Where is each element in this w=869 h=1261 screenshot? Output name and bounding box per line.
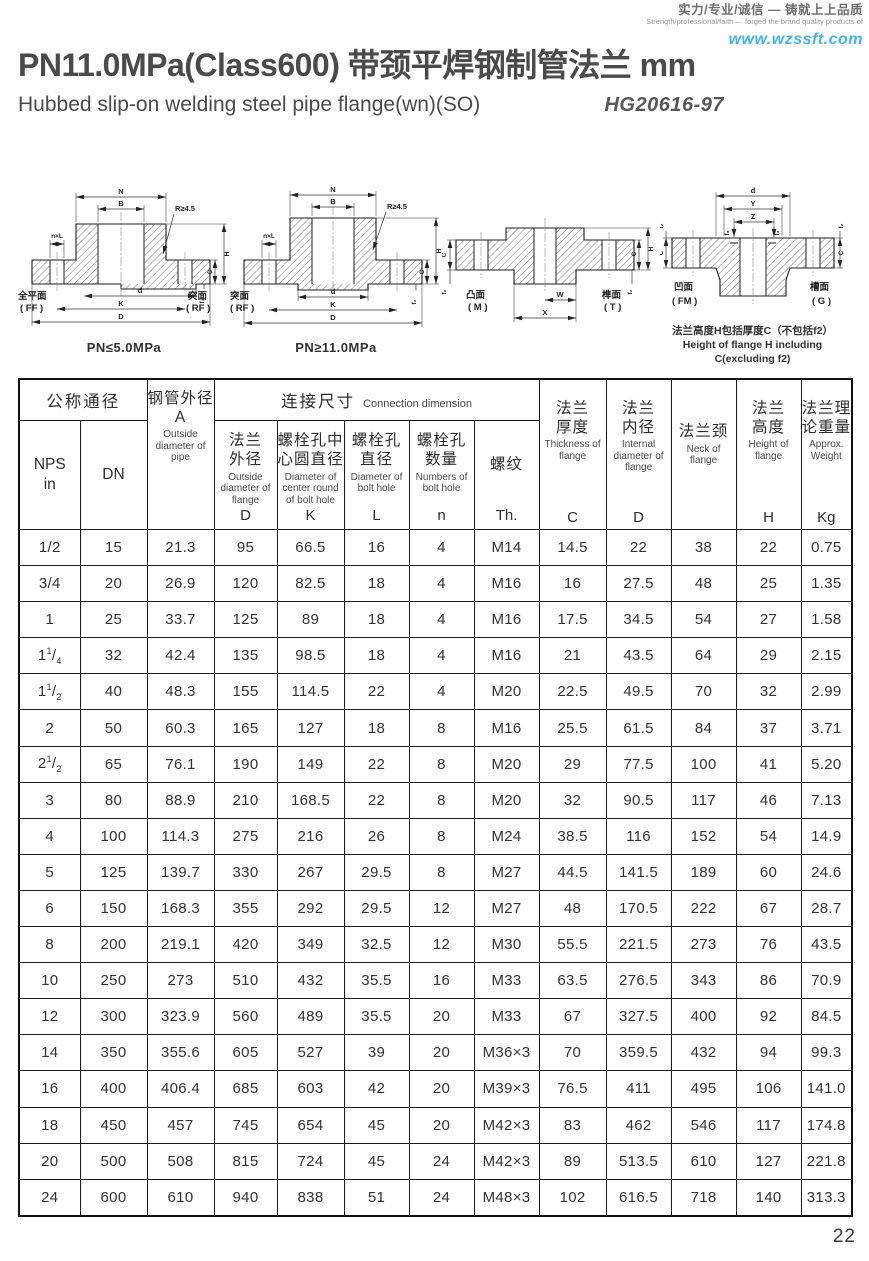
cell-bolt_circle: 82.5	[277, 566, 344, 602]
cell-neck: 189	[671, 854, 736, 890]
cell-pipe_od: 21.3	[147, 530, 214, 566]
cell-nps: 11/2	[19, 674, 80, 710]
cell-height: 32	[736, 674, 801, 710]
cell-dn: 500	[80, 1143, 147, 1179]
cell-flange_od: 940	[214, 1179, 277, 1216]
flange-section-ff-rf: N B n×L R≥4.5 d K D H	[18, 184, 230, 336]
dim-label-nxL: n×L	[51, 233, 63, 240]
cell-bolt_circle: 168.5	[277, 782, 344, 818]
header-thickness: 法兰 厚度 Thickness of flange C	[539, 379, 606, 530]
table-row: 21/26576.1190149228M202977.5100415.20	[19, 746, 852, 782]
cell-height: 127	[736, 1143, 801, 1179]
cell-bolt_hole_dia: 18	[344, 710, 409, 746]
cell-bolt_circle: 127	[277, 710, 344, 746]
cell-bolt_hole_num: 4	[409, 566, 474, 602]
face-labels: 凹面 ( FM ) 槽面 ( G )	[672, 281, 831, 307]
cell-bolt_hole_dia: 35.5	[344, 963, 409, 999]
cell-thread: M20	[474, 782, 539, 818]
cell-thickness: 83	[539, 1107, 606, 1143]
cell-internal_dia: 170.5	[606, 890, 671, 926]
face-right-cn: 槽面	[810, 281, 830, 293]
table-row: 6150168.335529229.512M2748170.52226728.7	[19, 890, 852, 926]
drawing-ff-rf: N B n×L R≥4.5 d K D H	[18, 184, 230, 355]
cell-height: 67	[736, 890, 801, 926]
cell-bolt_hole_num: 12	[409, 927, 474, 963]
cell-nps: 6	[19, 890, 80, 926]
cell-bolt_hole_dia: 35.5	[344, 999, 409, 1035]
cell-nps: 16	[19, 1071, 80, 1107]
cell-dn: 300	[80, 999, 147, 1035]
cell-neck: 400	[671, 999, 736, 1035]
cell-thread: M16	[474, 566, 539, 602]
cell-pipe_od: 139.7	[147, 854, 214, 890]
cell-thread: M20	[474, 746, 539, 782]
cell-thread: M27	[474, 890, 539, 926]
cell-pipe_od: 406.4	[147, 1071, 214, 1107]
cell-thread: M42×3	[474, 1107, 539, 1143]
dim-label-W: W	[556, 290, 564, 299]
page-subtitle: Hubbed slip-on welding steel pipe flange…	[18, 93, 480, 117]
drawing-fm-g: d Y Z f₃ f₃ f₂ f₂ C C	[654, 184, 851, 367]
drawing-caption: PN≥11.0MPa	[295, 340, 377, 355]
cell-weight: 70.9	[801, 963, 852, 999]
cell-nps: 14	[19, 1035, 80, 1071]
cell-pipe_od: 610	[147, 1179, 214, 1216]
cell-pipe_od: 508	[147, 1143, 214, 1179]
cell-pipe_od: 88.9	[147, 782, 214, 818]
cell-weight: 43.5	[801, 927, 852, 963]
cell-weight: 99.3	[801, 1035, 852, 1071]
cell-bolt_hole_num: 8	[409, 818, 474, 854]
header-pipe-od-letter: A	[175, 408, 186, 427]
cell-nps: 5	[19, 854, 80, 890]
dim-label-D: D	[118, 312, 124, 321]
cell-bolt_hole_num: 24	[409, 1143, 474, 1179]
cell-bolt_hole_num: 4	[409, 602, 474, 638]
dim-label-f2-left: f₂	[442, 289, 448, 294]
cell-bolt_hole_num: 12	[409, 890, 474, 926]
dim-label-K: K	[118, 299, 124, 308]
face-labels: 全平面 ( FF ) 突面 ( RF )	[18, 290, 210, 314]
cell-bolt_hole_num: 8	[409, 854, 474, 890]
cell-bolt_hole_num: 24	[409, 1179, 474, 1216]
cell-height: 22	[736, 530, 801, 566]
face-right-code: ( T )	[604, 302, 621, 313]
cell-bolt_circle: 527	[277, 1035, 344, 1071]
cell-flange_od: 510	[214, 963, 277, 999]
cell-bolt_hole_dia: 22	[344, 782, 409, 818]
cell-bolt_hole_dia: 26	[344, 818, 409, 854]
table-row: 11/24048.3155114.5224M2022.549.570322.99	[19, 674, 852, 710]
cell-thickness: 63.5	[539, 963, 606, 999]
header-bolt-hole-num: 螺栓孔 数量 Numbers of bolt hole n	[409, 421, 474, 530]
cell-internal_dia: 34.5	[606, 602, 671, 638]
cell-pipe_od: 42.4	[147, 638, 214, 674]
table-row: 4100114.3275216268M2438.51161525414.9	[19, 818, 852, 854]
height-note-cn: 法兰高度H包括厚度C（不包括f2）	[654, 324, 851, 338]
header-pipe-od: 钢管外径 A Outside diameter of pipe	[147, 379, 214, 530]
cell-bolt_hole_dia: 39	[344, 1035, 409, 1071]
cell-internal_dia: 49.5	[606, 674, 671, 710]
header-nominal-diameter: 公称通径	[19, 379, 147, 421]
flange-section-m-t: C f₂ W X H C f₂ 凸面 ( M )	[442, 184, 654, 334]
cell-pipe_od: 26.9	[147, 566, 214, 602]
cell-dn: 400	[80, 1071, 147, 1107]
cell-neck: 48	[671, 566, 736, 602]
cell-thickness: 76.5	[539, 1071, 606, 1107]
cell-dn: 40	[80, 674, 147, 710]
cell-flange_od: 605	[214, 1035, 277, 1071]
cell-bolt_hole_dia: 18	[344, 638, 409, 674]
cell-bolt_hole_dia: 32.5	[344, 927, 409, 963]
dim-label-B: B	[118, 199, 124, 208]
dim-label-B: B	[330, 197, 336, 206]
cell-pipe_od: 168.3	[147, 890, 214, 926]
cell-internal_dia: 462	[606, 1107, 671, 1143]
cell-thread: M27	[474, 854, 539, 890]
cell-nps: 4	[19, 818, 80, 854]
cell-internal_dia: 43.5	[606, 638, 671, 674]
cell-thickness: 17.5	[539, 602, 606, 638]
dim-label-f3-right: f₃	[774, 230, 781, 235]
cell-neck: 610	[671, 1143, 736, 1179]
dim-label-R: R≥4.5	[387, 202, 407, 211]
cell-bolt_circle: 149	[277, 746, 344, 782]
cell-bolt_hole_dia: 18	[344, 602, 409, 638]
drawing-rf: N B n×L R≥4.5 d K D H	[230, 184, 442, 355]
dim-label-f2: f₂	[411, 299, 418, 304]
cell-thickness: 48	[539, 890, 606, 926]
cell-flange_od: 125	[214, 602, 277, 638]
cell-pipe_od: 457	[147, 1107, 214, 1143]
cell-thickness: 14.5	[539, 530, 606, 566]
cell-flange_od: 135	[214, 638, 277, 674]
cell-bolt_hole_dia: 22	[344, 674, 409, 710]
cell-bolt_circle: 267	[277, 854, 344, 890]
table-row: 3/42026.912082.5184M161627.548251.35	[19, 566, 852, 602]
cell-neck: 432	[671, 1035, 736, 1071]
cell-bolt_hole_num: 4	[409, 674, 474, 710]
dim-label-C-left: C	[442, 252, 448, 257]
cell-bolt_hole_num: 20	[409, 999, 474, 1035]
cell-flange_od: 745	[214, 1107, 277, 1143]
face-right-code: ( G )	[812, 296, 831, 307]
cell-nps: 3/4	[19, 566, 80, 602]
header-nps: NPS in	[19, 421, 80, 530]
cell-thickness: 16	[539, 566, 606, 602]
face-left-cn: 突面	[230, 290, 250, 302]
cell-bolt_circle: 654	[277, 1107, 344, 1143]
header-bolt-hole-dia: 螺栓孔 直径 Diameter of bolt hole L	[344, 421, 409, 530]
face-right-cn: 榫面	[601, 289, 622, 301]
cell-height: 86	[736, 963, 801, 999]
cell-nps: 18	[19, 1107, 80, 1143]
table-row: 11/43242.413598.5184M162143.564292.15	[19, 638, 852, 674]
face-left-code: ( M )	[468, 302, 488, 313]
cell-weight: 2.99	[801, 674, 852, 710]
cell-weight: 221.8	[801, 1143, 852, 1179]
dim-label-d: d	[138, 286, 143, 295]
flange-table-body: 1/21521.39566.5164M1414.52238220.753/420…	[19, 530, 852, 1216]
standard-number: HG20616-97	[604, 94, 724, 117]
cell-flange_od: 190	[214, 746, 277, 782]
cell-weight: 1.58	[801, 602, 852, 638]
cell-pipe_od: 76.1	[147, 746, 214, 782]
cell-bolt_circle: 216	[277, 818, 344, 854]
header-pipe-od-en: Outside diameter of pipe	[150, 429, 212, 464]
cell-bolt_hole_num: 20	[409, 1071, 474, 1107]
cell-neck: 273	[671, 927, 736, 963]
cell-weight: 7.13	[801, 782, 852, 818]
dim-label-N: N	[330, 185, 335, 194]
cell-thread: M36×3	[474, 1035, 539, 1071]
cell-bolt_circle: 292	[277, 890, 344, 926]
cell-height: 25	[736, 566, 801, 602]
cell-pipe_od: 273	[147, 963, 214, 999]
cell-thickness: 102	[539, 1179, 606, 1216]
cell-thread: M14	[474, 530, 539, 566]
cell-neck: 117	[671, 782, 736, 818]
table-row: 246006109408385124M48×3102616.5718140313…	[19, 1179, 852, 1216]
cell-internal_dia: 616.5	[606, 1179, 671, 1216]
cell-bolt_hole_num: 8	[409, 710, 474, 746]
dim-label-D: D	[330, 313, 336, 322]
dim-label-f3-left: f₃	[724, 230, 731, 235]
cell-thread: M33	[474, 963, 539, 999]
dim-label-N: N	[118, 187, 123, 196]
cell-dn: 100	[80, 818, 147, 854]
cell-flange_od: 330	[214, 854, 277, 890]
cell-height: 46	[736, 782, 801, 818]
cell-nps: 12	[19, 999, 80, 1035]
cell-flange_od: 155	[214, 674, 277, 710]
table-row: 14350355.66055273920M36×370359.54329499.…	[19, 1035, 852, 1071]
cell-weight: 3.71	[801, 710, 852, 746]
cell-nps: 24	[19, 1179, 80, 1216]
cell-height: 41	[736, 746, 801, 782]
cell-bolt_circle: 489	[277, 999, 344, 1035]
cell-dn: 600	[80, 1179, 147, 1216]
cell-bolt_hole_num: 16	[409, 963, 474, 999]
header-connection-dimension: 连接尺寸Connection dimension	[214, 379, 539, 421]
dim-label-d: d	[331, 287, 336, 296]
dim-label-C: C	[207, 269, 214, 274]
cell-bolt_hole_dia: 22	[344, 746, 409, 782]
cell-dn: 250	[80, 963, 147, 999]
cell-thread: M42×3	[474, 1143, 539, 1179]
dim-label-f2-right: f₂	[838, 223, 845, 228]
cell-height: 117	[736, 1107, 801, 1143]
cell-internal_dia: 411	[606, 1071, 671, 1107]
face-left-cn: 凹面	[674, 282, 694, 293]
cell-thickness: 70	[539, 1035, 606, 1071]
cell-thread: M30	[474, 927, 539, 963]
cell-weight: 141.0	[801, 1071, 852, 1107]
cell-bolt_circle: 349	[277, 927, 344, 963]
drawing-m-t: C f₂ W X H C f₂ 凸面 ( M )	[442, 184, 654, 334]
cell-bolt_circle: 66.5	[277, 530, 344, 566]
cell-nps: 1/2	[19, 530, 80, 566]
cell-thread: M20	[474, 674, 539, 710]
cell-flange_od: 355	[214, 890, 277, 926]
cell-neck: 100	[671, 746, 736, 782]
dim-label-Z: Z	[750, 212, 755, 221]
cell-neck: 718	[671, 1179, 736, 1216]
cell-bolt_circle: 98.5	[277, 638, 344, 674]
cell-flange_od: 420	[214, 927, 277, 963]
cell-bolt_hole_num: 4	[409, 530, 474, 566]
cell-bolt_hole_dia: 42	[344, 1071, 409, 1107]
cell-neck: 54	[671, 602, 736, 638]
cell-bolt_circle: 114.5	[277, 674, 344, 710]
cell-thickness: 55.5	[539, 927, 606, 963]
table-row: 12533.712589184M1617.534.554271.58	[19, 602, 852, 638]
cell-dn: 450	[80, 1107, 147, 1143]
cell-thickness: 21	[539, 638, 606, 674]
cell-nps: 21/2	[19, 746, 80, 782]
cell-internal_dia: 77.5	[606, 746, 671, 782]
cell-dn: 65	[80, 746, 147, 782]
cell-bolt_hole_dia: 18	[344, 566, 409, 602]
cell-flange_od: 685	[214, 1071, 277, 1107]
cell-thickness: 44.5	[539, 854, 606, 890]
cell-thickness: 89	[539, 1143, 606, 1179]
cell-weight: 5.20	[801, 746, 852, 782]
cell-height: 94	[736, 1035, 801, 1071]
cell-weight: 28.7	[801, 890, 852, 926]
cell-pipe_od: 114.3	[147, 818, 214, 854]
dim-label-C: C	[419, 269, 426, 274]
cell-dn: 20	[80, 566, 147, 602]
cell-thickness: 38.5	[539, 818, 606, 854]
dim-label-R: R≥4.5	[175, 204, 195, 213]
cell-flange_od: 120	[214, 566, 277, 602]
cell-internal_dia: 61.5	[606, 710, 671, 746]
cell-weight: 313.3	[801, 1179, 852, 1216]
cell-nps: 10	[19, 963, 80, 999]
cell-neck: 222	[671, 890, 736, 926]
table-row: 16400406.46856034220M39×376.541149510614…	[19, 1071, 852, 1107]
cell-bolt_hole_num: 4	[409, 638, 474, 674]
face-left-cn: 全平面	[18, 290, 47, 302]
table-row: 1/21521.39566.5164M1414.52238220.75	[19, 530, 852, 566]
cell-height: 60	[736, 854, 801, 890]
cell-height: 27	[736, 602, 801, 638]
header-internal-dia: 法兰 内径 Internal diameter of flange D	[606, 379, 671, 530]
face-left-code: ( FF )	[20, 303, 43, 314]
cell-internal_dia: 27.5	[606, 566, 671, 602]
cell-weight: 84.5	[801, 999, 852, 1035]
cell-internal_dia: 359.5	[606, 1035, 671, 1071]
cell-pipe_od: 355.6	[147, 1035, 214, 1071]
flange-section-rf: N B n×L R≥4.5 d K D H	[230, 184, 442, 336]
cell-neck: 546	[671, 1107, 736, 1143]
face-right-code: ( RF )	[186, 303, 210, 314]
cell-neck: 38	[671, 530, 736, 566]
cell-height: 54	[736, 818, 801, 854]
cell-internal_dia: 221.5	[606, 927, 671, 963]
cell-internal_dia: 513.5	[606, 1143, 671, 1179]
cell-dn: 25	[80, 602, 147, 638]
dim-label-C-right: C	[838, 250, 845, 255]
cell-nps: 3	[19, 782, 80, 818]
table-row: 12300323.956048935.520M3367327.54009284.…	[19, 999, 852, 1035]
table-row: 5125139.733026729.58M2744.5141.51896024.…	[19, 854, 852, 890]
cell-weight: 174.8	[801, 1107, 852, 1143]
header-flange-od: 法兰 外径 Outside diameter of flange D	[214, 421, 277, 530]
cell-bolt_circle: 603	[277, 1071, 344, 1107]
face-left-code: ( RF )	[230, 303, 254, 314]
cell-bolt_hole_num: 8	[409, 746, 474, 782]
cell-bolt_circle: 724	[277, 1143, 344, 1179]
brand-slogan-en: Strength/professional/faith — forged the…	[646, 18, 863, 27]
cell-pipe_od: 60.3	[147, 710, 214, 746]
cell-dn: 15	[80, 530, 147, 566]
cell-neck: 343	[671, 963, 736, 999]
cell-bolt_hole_dia: 45	[344, 1107, 409, 1143]
table-row: 38088.9210168.5228M203290.5117467.13	[19, 782, 852, 818]
cell-thickness: 32	[539, 782, 606, 818]
cell-dn: 32	[80, 638, 147, 674]
cell-thread: M16	[474, 710, 539, 746]
page-title: PN11.0MPa(Class600) 带颈平焊钢制管法兰 mm	[18, 40, 851, 86]
cell-neck: 495	[671, 1071, 736, 1107]
cell-nps: 20	[19, 1143, 80, 1179]
cell-internal_dia: 22	[606, 530, 671, 566]
cell-dn: 150	[80, 890, 147, 926]
cell-height: 92	[736, 999, 801, 1035]
cell-bolt_hole_num: 20	[409, 1035, 474, 1071]
table-row: 25060.3165127188M1625.561.584373.71	[19, 710, 852, 746]
cell-thread: M16	[474, 638, 539, 674]
cell-thread: M16	[474, 602, 539, 638]
cell-bolt_circle: 432	[277, 963, 344, 999]
cell-pipe_od: 323.9	[147, 999, 214, 1035]
cell-internal_dia: 116	[606, 818, 671, 854]
cell-neck: 84	[671, 710, 736, 746]
cell-thickness: 22.5	[539, 674, 606, 710]
dimension-lines: N B n×L R≥4.5 d K D H	[244, 185, 442, 327]
cell-flange_od: 560	[214, 999, 277, 1035]
face-labels: 突面 ( RF )	[230, 290, 254, 314]
cell-internal_dia: 141.5	[606, 854, 671, 890]
cell-internal_dia: 327.5	[606, 999, 671, 1035]
cell-pipe_od: 48.3	[147, 674, 214, 710]
face-left-code: ( FM )	[672, 296, 697, 307]
spec-table-wrap: 公称通径 钢管外径 A Outside diameter of pipe 连接尺…	[18, 378, 853, 1217]
cell-bolt_hole_num: 8	[409, 782, 474, 818]
cell-weight: 1.35	[801, 566, 852, 602]
brand-slogan-cn: 实力/专业/诚信 — 铸就上上品质	[646, 3, 863, 17]
cell-internal_dia: 276.5	[606, 963, 671, 999]
cell-thickness: 29	[539, 746, 606, 782]
cell-nps: 11/4	[19, 638, 80, 674]
cell-weight: 2.15	[801, 638, 852, 674]
cell-thickness: 67	[539, 999, 606, 1035]
title-block: PN11.0MPa(Class600) 带颈平焊钢制管法兰 mm Hubbed …	[18, 40, 851, 117]
height-note: 法兰高度H包括厚度C（不包括f2） Height of flange H inc…	[654, 324, 851, 367]
cell-flange_od: 210	[214, 782, 277, 818]
cell-height: 29	[736, 638, 801, 674]
header-height: 法兰 高度 Height of flange H	[736, 379, 801, 530]
cell-height: 140	[736, 1179, 801, 1216]
dim-label-Y: Y	[750, 199, 755, 208]
table-row: 1025027351043235.516M3363.5276.53438670.…	[19, 963, 852, 999]
cell-bolt_hole_dia: 16	[344, 530, 409, 566]
page-number: 22	[833, 1226, 856, 1248]
cell-dn: 80	[80, 782, 147, 818]
header-neck: 法兰颈 Neck of flange	[671, 379, 736, 530]
